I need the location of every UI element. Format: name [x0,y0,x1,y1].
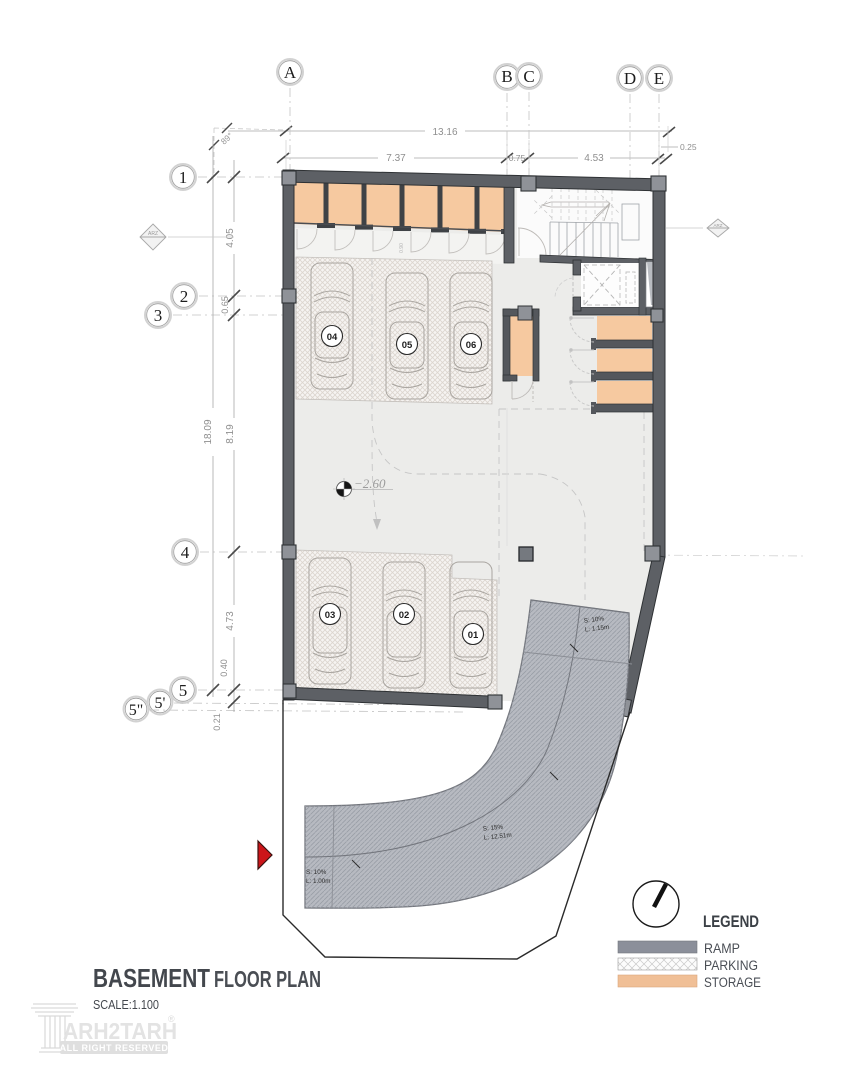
svg-text:5": 5" [129,702,144,719]
svg-text:ARZ: ARZ [714,223,723,228]
svg-text:0.25: 0.25 [680,142,697,152]
svg-text:0.21: 0.21 [212,713,222,731]
svg-text:0.90: 0.90 [399,243,405,253]
svg-text:®: ® [168,1014,175,1024]
svg-text:ALL RIGHT RESERVED: ALL RIGHT RESERVED [60,1043,169,1053]
svg-text:B: B [501,67,512,86]
svg-text:4.05: 4.05 [225,228,236,248]
svg-text:STORAGE: STORAGE [704,975,761,990]
svg-text:8.19: 8.19 [225,424,236,444]
svg-text:LEGEND: LEGEND [703,912,759,931]
svg-text:5: 5 [179,681,188,700]
svg-text:E: E [654,69,664,88]
svg-text:S: 10%: S: 10% [306,869,327,876]
svg-text:7.37: 7.37 [386,153,406,164]
svg-text:PARKING: PARKING [704,958,758,973]
svg-text:ARZ: ARZ [148,231,158,237]
svg-text:L: 1.00m: L: 1.00m [306,878,331,885]
svg-text:D: D [624,69,636,88]
svg-text:−2.60: −2.60 [354,476,386,491]
svg-text:4.73: 4.73 [225,611,236,631]
svg-text:RAMP: RAMP [704,941,740,956]
svg-text:A: A [284,63,297,82]
svg-text:SCALE:1.100: SCALE:1.100 [93,997,159,1012]
svg-text:04: 04 [327,332,338,343]
svg-text:01: 01 [468,630,479,641]
svg-text:06: 06 [466,340,477,351]
svg-text:0.40: 0.40 [219,659,229,677]
svg-text:03: 03 [325,610,336,621]
svg-text:BASEMENT: BASEMENT [93,963,210,993]
svg-text:3: 3 [154,306,163,325]
svg-text:4: 4 [181,543,190,562]
svg-text:5': 5' [155,695,166,712]
svg-text:2: 2 [180,287,189,306]
svg-text:0.75: 0.75 [509,153,526,163]
svg-text:05: 05 [402,340,413,351]
svg-text:ARH2TARH: ARH2TARH [63,1018,177,1044]
svg-text:FLOOR PLAN: FLOOR PLAN [214,966,321,992]
svg-text:02: 02 [399,610,410,621]
svg-text:4.53: 4.53 [584,153,604,164]
svg-text:0.65: 0.65 [220,296,230,314]
svg-text:C: C [523,67,534,86]
svg-text:13.16: 13.16 [432,127,457,138]
svg-text:18.09: 18.09 [203,419,214,444]
svg-text:1: 1 [179,168,188,187]
